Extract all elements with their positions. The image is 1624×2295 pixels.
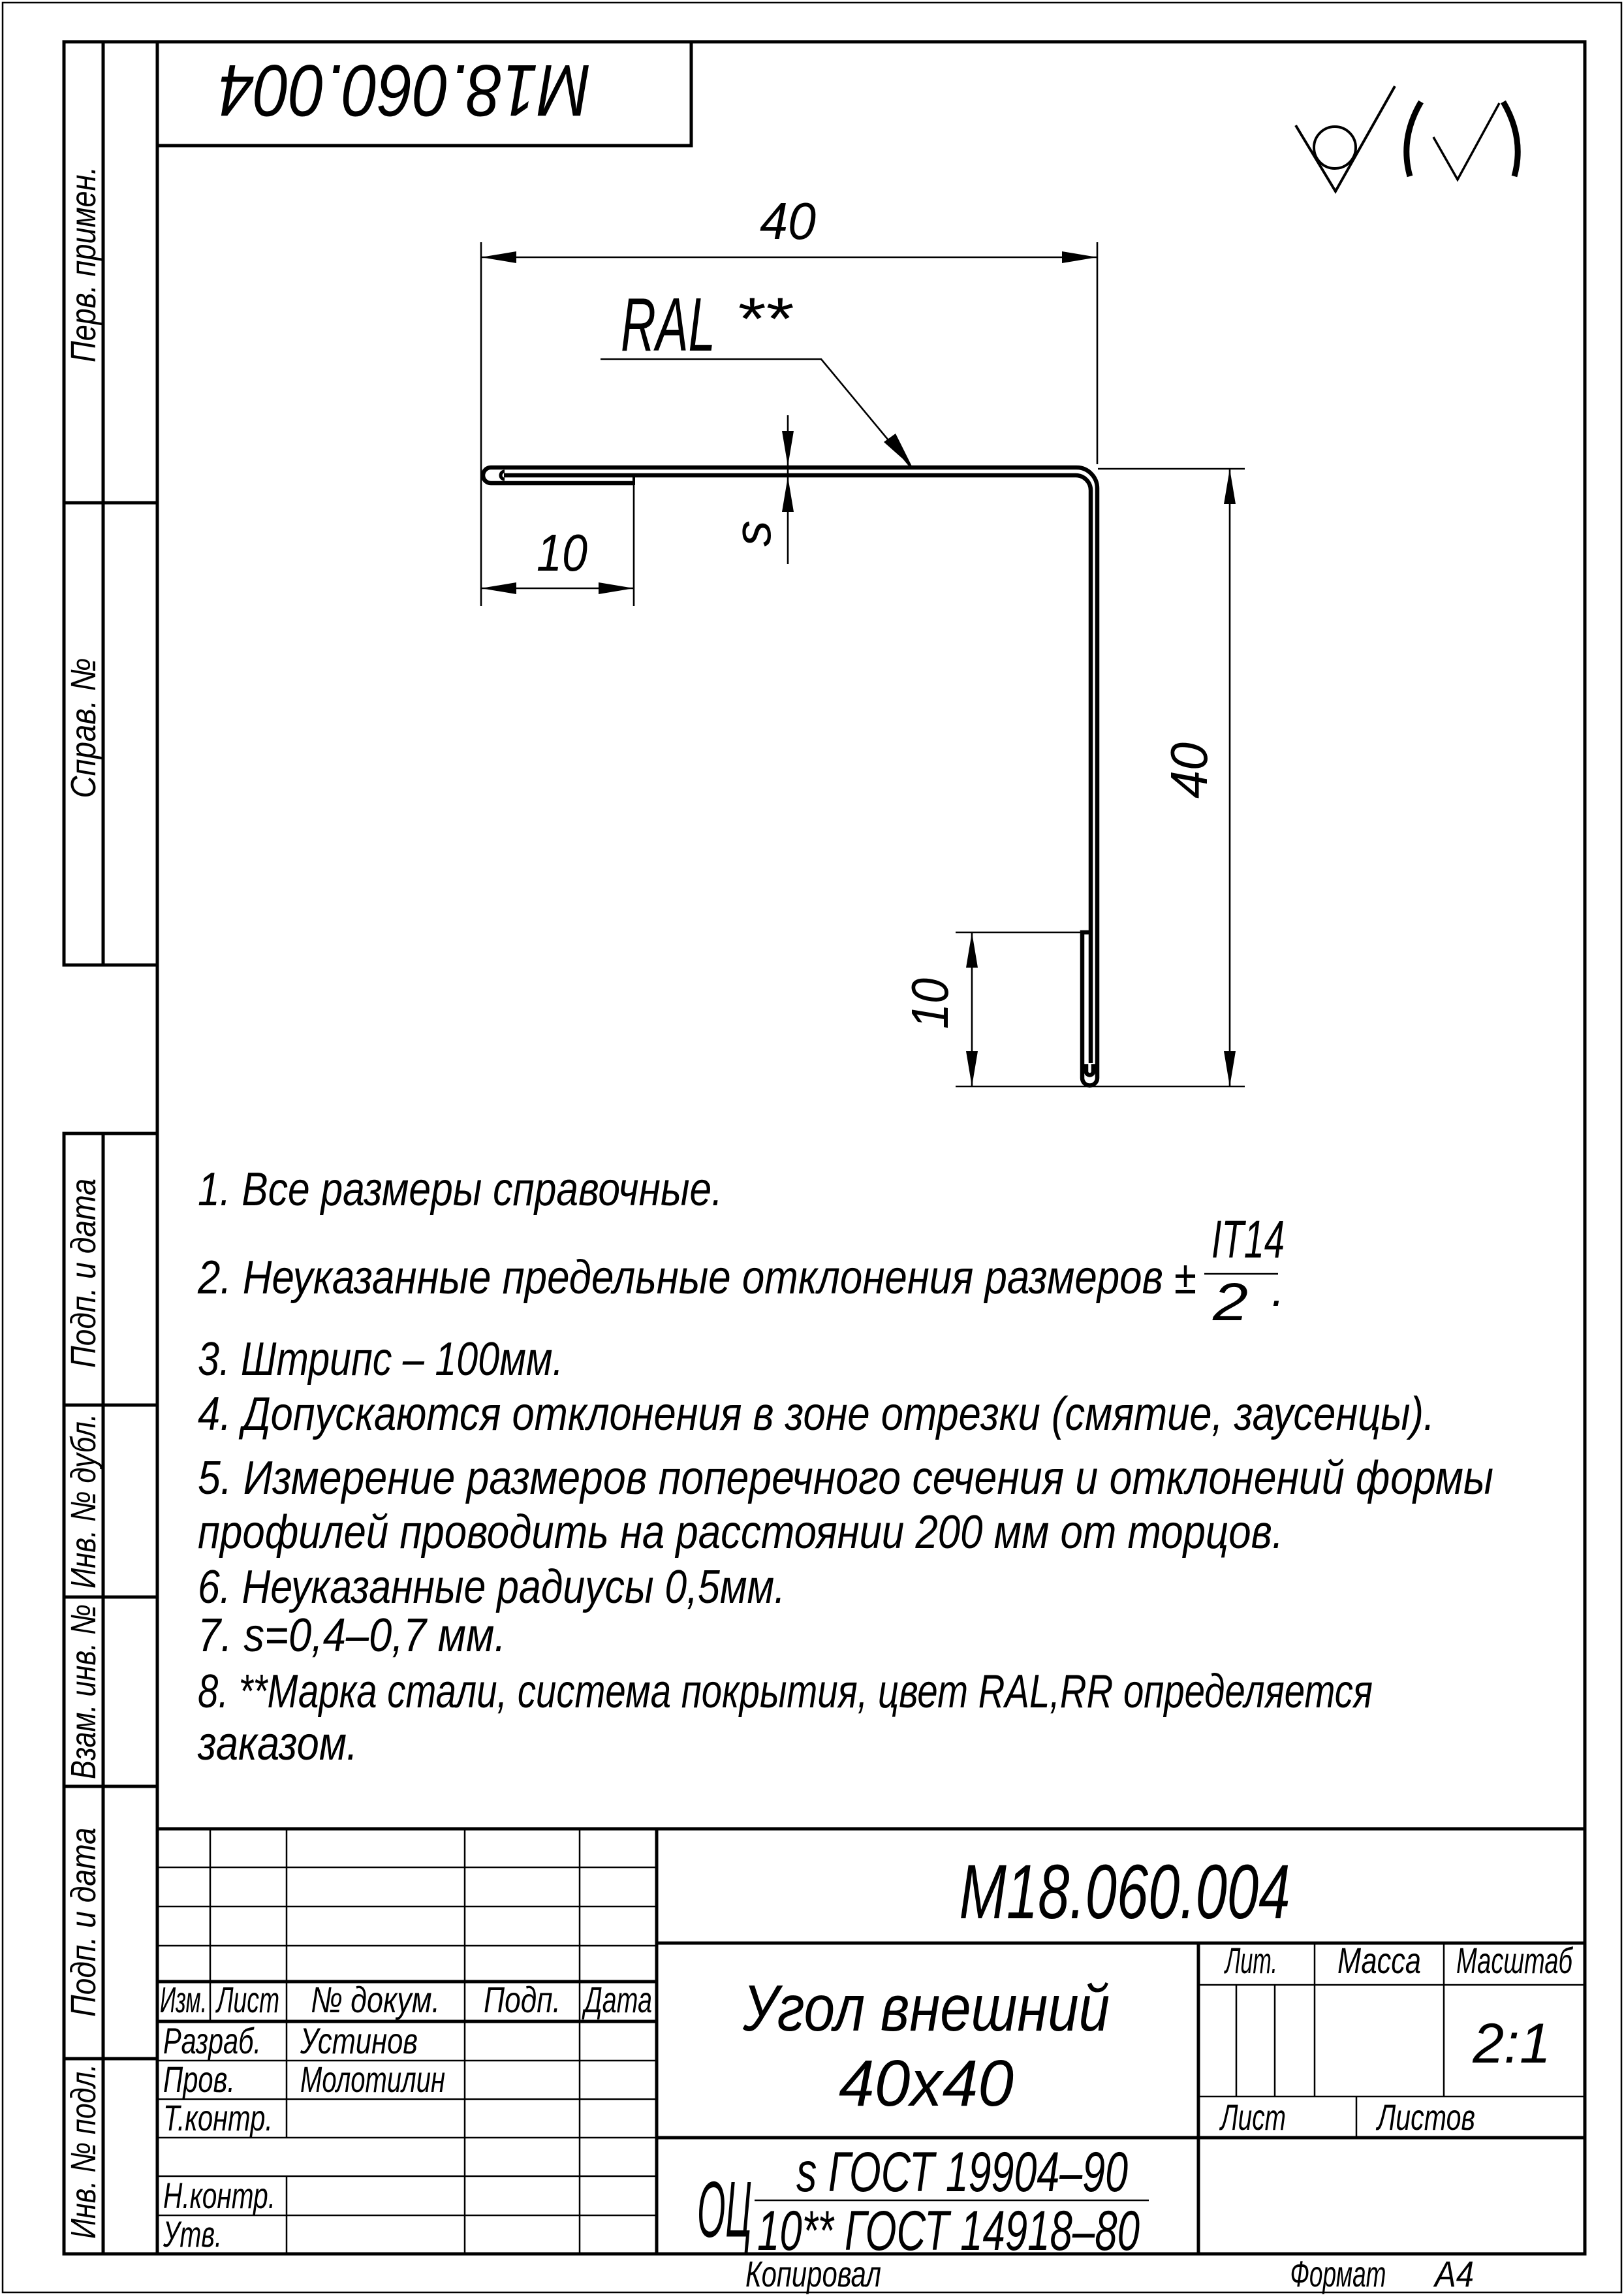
svg-text:6. Неуказанные радиусы 0,5мм.: 6. Неуказанные радиусы 0,5мм. xyxy=(198,1561,785,1613)
svg-text:Молотилин: Молотилин xyxy=(300,2059,445,2100)
svg-text:7. s=0,4–0,7 мм.: 7. s=0,4–0,7 мм. xyxy=(198,1609,506,1662)
svg-text:Устинов: Устинов xyxy=(300,2020,418,2061)
svg-text:заказом.: заказом. xyxy=(197,1718,358,1770)
svg-text:Справ. №: Справ. № xyxy=(64,658,103,799)
svg-text:5. Измерение размеров попереч: 5. Измерение размеров поперечного сечени… xyxy=(198,1452,1493,1504)
svg-text:Разраб.: Разраб. xyxy=(163,2020,261,2061)
svg-text:Подп.: Подп. xyxy=(484,1979,561,2020)
svg-text:40: 40 xyxy=(1160,742,1218,799)
svg-text:Перв. примен.: Перв. примен. xyxy=(64,166,103,362)
svg-text:Т.контр.: Т.контр. xyxy=(163,2097,273,2138)
svg-text:Угол внешний: Угол внешний xyxy=(742,1972,1110,2045)
svg-text:2:1: 2:1 xyxy=(1472,2012,1551,2075)
svg-text:М18.060.004: М18.060.004 xyxy=(219,50,591,131)
svg-text:3. Штрипс – 100мм.: 3. Штрипс – 100мм. xyxy=(198,1333,563,1385)
svg-text:Дата: Дата xyxy=(582,1979,652,2020)
svg-text:Пров.: Пров. xyxy=(163,2059,235,2100)
svg-text:4. Допускаются отклонения в з: 4. Допускаются отклонения в зоне отрезки… xyxy=(198,1388,1435,1440)
svg-text:Копировал: Копировал xyxy=(745,2253,881,2294)
svg-text:Лист: Лист xyxy=(1219,2097,1286,2138)
svg-text:Масштаб: Масштаб xyxy=(1456,1940,1574,1981)
svg-text:Инв. № дубл.: Инв. № дубл. xyxy=(64,1414,103,1589)
svg-text:.: . xyxy=(1272,1264,1285,1316)
svg-text:Лист: Лист xyxy=(215,1979,279,2020)
svg-text:Подп. и дата: Подп. и дата xyxy=(64,1179,103,1368)
svg-text:2: 2 xyxy=(1212,1273,1248,1332)
svg-text:**: ** xyxy=(735,286,794,353)
svg-text:40х40: 40х40 xyxy=(839,2047,1014,2120)
svg-text:8. **Марка стали, система пок: 8. **Марка стали, система покрытия, цвет… xyxy=(198,1666,1373,1718)
svg-text:М18.060.004: М18.060.004 xyxy=(960,1849,1290,1935)
svg-text:Инв. № подл.: Инв. № подл. xyxy=(64,2064,103,2239)
svg-text:Подп. и дата: Подп. и дата xyxy=(64,1828,103,2017)
svg-text:Взам. инв. №: Взам. инв. № xyxy=(64,1604,103,1779)
svg-text:Масса: Масса xyxy=(1337,1940,1421,1981)
svg-text:№ докум.: № докум. xyxy=(311,1979,440,2020)
svg-text:Лит.: Лит. xyxy=(1224,1940,1277,1981)
svg-text:40: 40 xyxy=(760,192,816,250)
svg-text:s: s xyxy=(723,520,781,546)
svg-text:ОЦ: ОЦ xyxy=(697,2165,752,2254)
svg-text:Утв.: Утв. xyxy=(163,2213,222,2255)
svg-text:1. Все размеры справочные.: 1. Все размеры справочные. xyxy=(198,1163,723,1216)
svg-text:s ГОСТ 19904–90: s ГОСТ 19904–90 xyxy=(796,2141,1128,2204)
svg-text:10: 10 xyxy=(537,524,587,582)
svg-text:Формат: Формат xyxy=(1290,2253,1386,2294)
svg-text:2. Неуказанные предельные отк: 2. Неуказанные предельные отклонения раз… xyxy=(197,1252,1196,1304)
svg-text:RAL: RAL xyxy=(621,282,715,367)
svg-text:профилей проводить на расстоян: профилей проводить на расстоянии 200 мм … xyxy=(198,1506,1283,1559)
svg-text:Изм.: Изм. xyxy=(160,1979,207,2020)
svg-text:IT14: IT14 xyxy=(1211,1210,1285,1269)
svg-text:Листов: Листов xyxy=(1376,2097,1475,2138)
svg-text:А4: А4 xyxy=(1433,2253,1474,2294)
svg-text:Н.контр.: Н.контр. xyxy=(163,2175,275,2216)
svg-text:10: 10 xyxy=(901,978,959,1029)
